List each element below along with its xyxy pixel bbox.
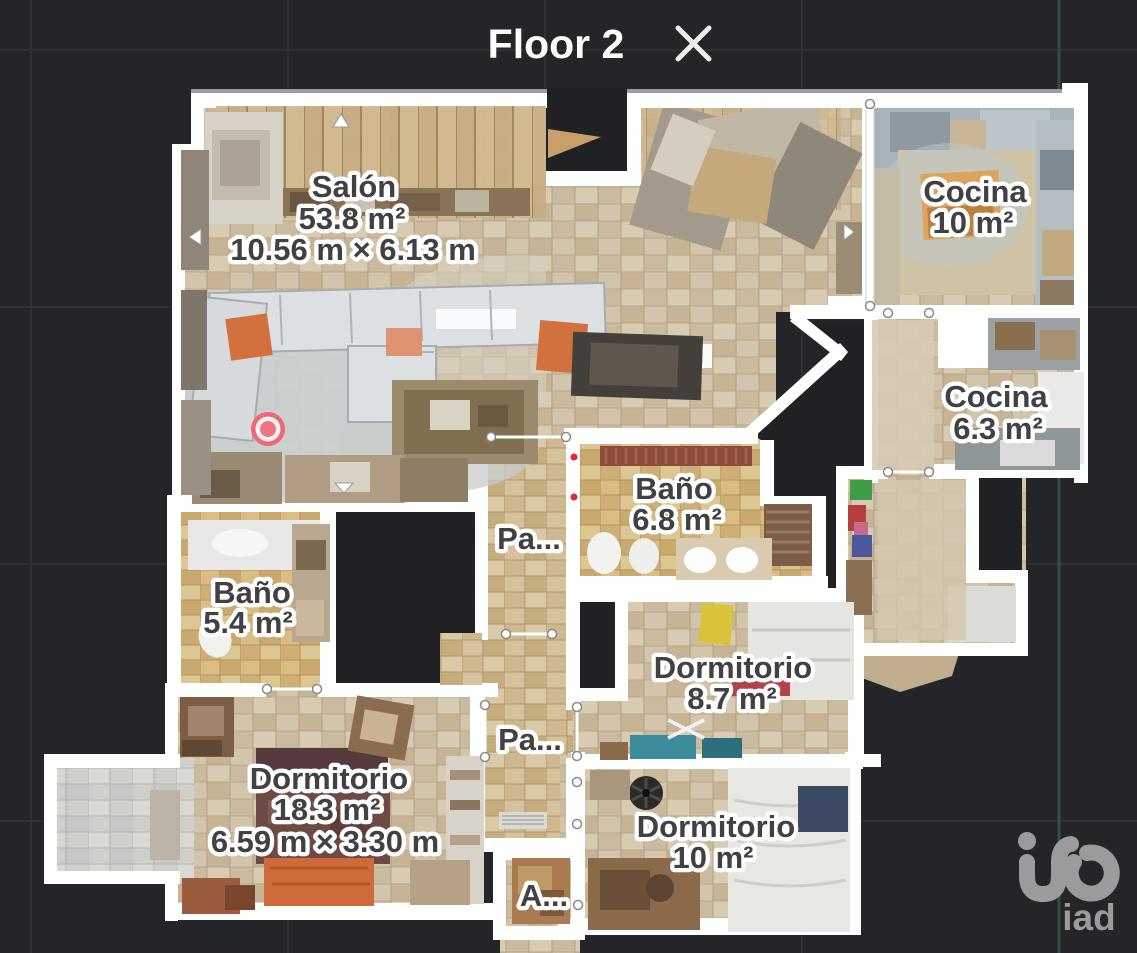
svg-text:18.3 m²: 18.3 m² <box>274 792 381 827</box>
svg-text:6.59 m × 3.30 m: 6.59 m × 3.30 m <box>211 824 439 859</box>
svg-text:8.7 m²: 8.7 m² <box>687 681 777 716</box>
svg-text:Floor 2: Floor 2 <box>488 21 625 67</box>
svg-text:10 m²: 10 m² <box>933 205 1014 240</box>
svg-text:Salón: Salón <box>312 169 396 204</box>
svg-text:Dormitorio: Dormitorio <box>637 809 795 844</box>
svg-text:Dormitorio: Dormitorio <box>654 650 812 685</box>
svg-text:Pa...: Pa... <box>498 722 562 757</box>
svg-text:Dormitorio: Dormitorio <box>250 761 408 796</box>
svg-text:10 m²: 10 m² <box>673 840 754 875</box>
svg-text:Cocina: Cocina <box>944 379 1048 414</box>
svg-text:Cocina: Cocina <box>923 174 1027 209</box>
svg-text:6.8 m²: 6.8 m² <box>632 502 722 537</box>
svg-text:53.8 m²: 53.8 m² <box>299 201 406 236</box>
svg-text:10.56 m × 6.13 m: 10.56 m × 6.13 m <box>230 232 476 267</box>
svg-text:5.4 m²: 5.4 m² <box>203 605 293 640</box>
svg-text:Baño: Baño <box>635 471 713 506</box>
svg-text:iad: iad <box>1062 897 1115 938</box>
svg-text:A...: A... <box>520 878 568 913</box>
svg-text:Pa...: Pa... <box>497 521 561 556</box>
svg-text:6.3 m²: 6.3 m² <box>953 411 1043 446</box>
